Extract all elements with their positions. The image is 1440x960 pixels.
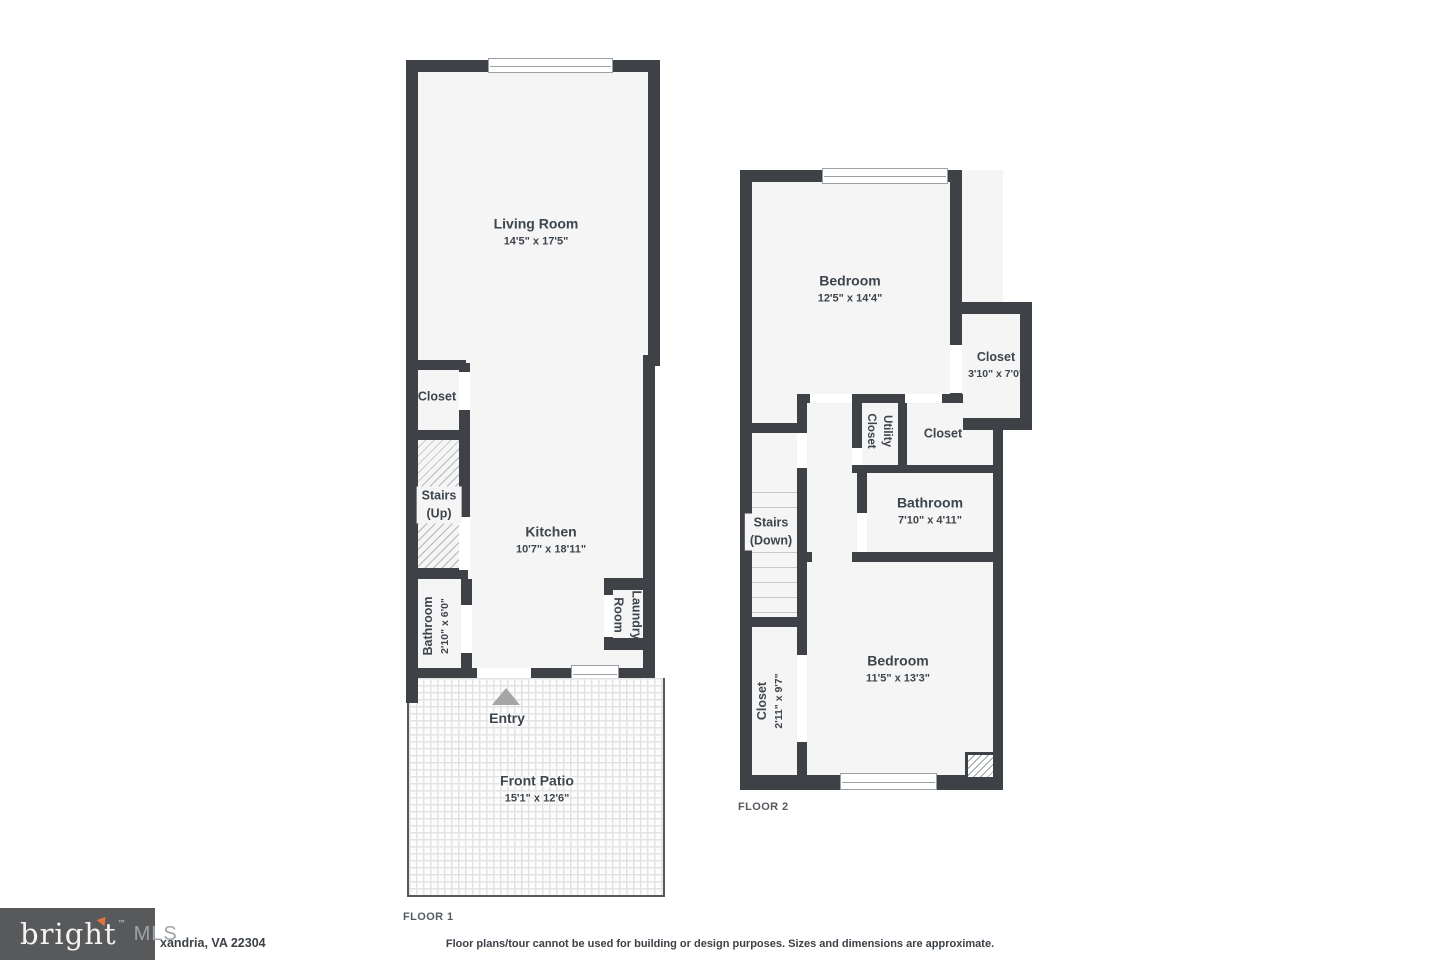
wall: [406, 360, 466, 370]
wall: [993, 428, 1003, 790]
door-opening: [810, 394, 852, 403]
door-opening: [797, 655, 807, 742]
trademark-symbol: ™: [118, 919, 127, 928]
door-opening: [950, 345, 962, 393]
floor2-bathroom-label: Bathroom 7'10" x 4'11": [897, 494, 963, 529]
bathroom-dims: 2'10" x 6'0": [437, 596, 452, 655]
wall: [406, 430, 466, 440]
living-room-label: Living Room 14'5" x 17'5": [494, 215, 579, 250]
wall: [852, 465, 993, 473]
floor1-bathroom-label: Bathroom 2'10" x 6'0": [420, 596, 452, 655]
wall: [459, 363, 470, 372]
window: [822, 168, 948, 184]
wall: [459, 410, 470, 440]
utility-line2: Closet: [863, 413, 879, 448]
bedroom-dims: 12'5" x 14'4": [818, 291, 883, 306]
wall: [406, 60, 418, 680]
wall: [461, 653, 472, 668]
door-opening: [797, 433, 807, 468]
door-opening: [852, 448, 862, 465]
closet-name: Closet: [418, 388, 456, 406]
bedroom-name: Bedroom: [866, 652, 930, 672]
wall: [740, 170, 752, 790]
kitchen-dims: 10'7" x 18'11": [516, 542, 586, 557]
utility-closet-label: Utility Closet: [863, 413, 895, 448]
laundry-line1: Laundry: [627, 590, 645, 639]
closet-dims: 3'10" x 7'0": [968, 366, 1024, 381]
door-opening: [461, 605, 472, 653]
front-patio-label: Front Patio 15'1" x 12'6": [500, 772, 574, 807]
entry-arrow-icon: [492, 688, 520, 705]
wall: [604, 638, 655, 650]
bedroom-bottom-label: Bedroom 11'5" x 13'3": [866, 652, 930, 687]
bedroom-dims: 11'5" x 13'3": [866, 671, 930, 686]
bedroom-top-label: Bedroom 12'5" x 14'4": [818, 272, 883, 307]
wall: [740, 617, 807, 627]
laundry-line2: Room: [610, 590, 628, 639]
floor2-tag: FLOOR 2: [738, 801, 788, 813]
entry-label: Entry: [489, 709, 525, 729]
floor1-living-fill: [406, 60, 660, 366]
stairs-name: Stairs: [750, 515, 792, 533]
wall: [852, 403, 862, 448]
wall: [857, 465, 867, 513]
stairs-up-label: Stairs (Up): [417, 487, 462, 524]
closet-mid-label: Closet: [924, 425, 962, 443]
closet-dims: 2'11" x 9'7": [771, 673, 786, 728]
floorplan-canvas: Living Room 14'5" x 17'5" Closet Stairs …: [0, 0, 1440, 960]
bathroom-name: Bathroom: [897, 494, 963, 514]
utility-line1: Utility: [879, 413, 895, 448]
wall: [942, 394, 963, 403]
living-room-dims: 14'5" x 17'5": [494, 234, 579, 249]
closet-right-label: Closet 3'10" x 7'0": [968, 349, 1024, 381]
entry-text: Entry: [489, 709, 525, 729]
door-opening: [459, 517, 470, 570]
wall: [852, 552, 1003, 562]
kitchen-name: Kitchen: [516, 523, 586, 543]
wall: [797, 742, 807, 790]
stairs-direction: (Down): [750, 532, 792, 550]
stairs-direction: (Up): [422, 505, 457, 523]
door-opening: [905, 394, 942, 403]
closet-name: Closet: [754, 673, 772, 728]
door-opening: [857, 513, 867, 552]
chimney-hatch: [965, 752, 996, 780]
wall: [802, 552, 812, 562]
wall: [898, 403, 907, 465]
window: [840, 773, 937, 790]
stairs-name: Stairs: [422, 488, 457, 506]
bathroom-name: Bathroom: [420, 596, 438, 655]
wall: [740, 423, 807, 433]
laundry-room-label: Laundry Room: [610, 590, 645, 639]
logo-mls-text: MLS: [134, 923, 178, 946]
door-opening: [459, 372, 470, 410]
window: [488, 58, 613, 73]
bright-mls-logo: bright™ MLS: [0, 908, 155, 960]
closet-name: Closet: [968, 349, 1024, 367]
patio-name: Front Patio: [500, 772, 574, 792]
closet-bottom-label: Closet 2'11" x 9'7": [754, 673, 786, 728]
living-room-name: Living Room: [494, 215, 579, 235]
closet-name: Closet: [924, 425, 962, 443]
logo-brand-text: bright™: [20, 920, 127, 949]
stairs-down-label: Stairs (Down): [745, 514, 797, 551]
disclaimer-text: Floor plans/tour cannot be used for buil…: [0, 938, 1440, 950]
floor1-tag: FLOOR 1: [403, 911, 453, 923]
floor1-closet-label: Closet: [418, 388, 456, 406]
bedroom-name: Bedroom: [818, 272, 883, 292]
wall: [852, 394, 905, 403]
kitchen-label: Kitchen 10'7" x 18'11": [516, 523, 586, 558]
wall: [461, 579, 472, 605]
wall: [643, 358, 655, 680]
wall: [648, 60, 660, 366]
bathroom-dims: 7'10" x 4'11": [897, 513, 963, 528]
wall: [406, 675, 418, 703]
patio-dims: 15'1" x 12'6": [500, 791, 574, 806]
wall: [950, 170, 962, 345]
